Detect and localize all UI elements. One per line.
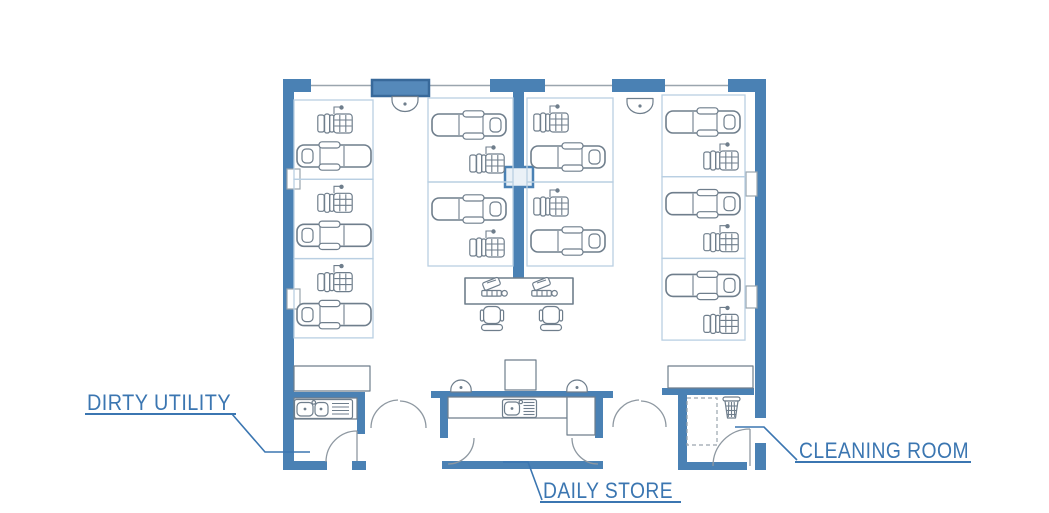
- door-swing: [713, 429, 750, 466]
- equipment-zone: [687, 398, 717, 445]
- counter: [294, 366, 370, 391]
- dental-cart-icon: [704, 142, 738, 170]
- dental-cart-icon: [534, 188, 568, 216]
- dental-cart-icon: [470, 145, 504, 173]
- dental-cart-icon: [704, 224, 738, 252]
- counter: [567, 397, 595, 435]
- office-chair-icon: [480, 307, 503, 331]
- daily-store-room: [448, 397, 598, 464]
- door-swing: [326, 431, 357, 462]
- dental-chair-icon: [666, 108, 740, 136]
- dental-chair-icon: [531, 227, 605, 255]
- reception-desk: [465, 277, 573, 331]
- dental-chair-icon: [531, 143, 605, 171]
- office-chair-icon: [539, 307, 562, 331]
- dental-cart-icon: [318, 264, 352, 292]
- floor-plan: DIRTY UTILITY DAILY STORE CLEANING ROOM: [0, 0, 1049, 513]
- wall-fixture-icon: [392, 97, 418, 112]
- dental-cart-icon: [318, 105, 352, 133]
- door-swing: [448, 438, 474, 464]
- dental-cart-icon: [704, 306, 738, 334]
- dental-chair-icon: [666, 190, 740, 218]
- wall-fixture-icon: [567, 380, 587, 392]
- daily-store-label: DAILY STORE: [543, 478, 673, 503]
- cleaning-room: [687, 397, 750, 466]
- double-swing-door: [371, 400, 426, 428]
- wall-cabinet: [505, 167, 533, 187]
- dental-chair-icon: [432, 195, 506, 223]
- dirty-utility-label: DIRTY UTILITY: [87, 390, 231, 415]
- sink-icon: [503, 400, 537, 418]
- dental-chair-icon: [297, 142, 371, 170]
- entrance-door-panel: [372, 80, 429, 96]
- wall-fixture-icon: [451, 380, 471, 392]
- dental-chair-icon: [297, 221, 371, 249]
- wall-fixture-icon: [627, 99, 653, 114]
- cleaning-room-label: CLEANING ROOM: [799, 438, 969, 463]
- dental-chair-icon: [297, 300, 371, 328]
- waste-bin-icon: [723, 397, 740, 418]
- double-swing-door: [613, 400, 666, 427]
- door-swing: [572, 438, 598, 464]
- square-table: [505, 360, 536, 390]
- dental-cart-icon: [318, 185, 352, 213]
- dental-cart-icon: [470, 229, 504, 257]
- counter: [668, 366, 753, 388]
- dental-chair-icon: [666, 271, 740, 299]
- dental-cart-icon: [534, 104, 568, 132]
- double-sink-icon: [295, 400, 353, 419]
- floor-plan-drawing: DIRTY UTILITY DAILY STORE CLEANING ROOM: [0, 0, 1049, 513]
- dental-chair-icon: [432, 111, 506, 139]
